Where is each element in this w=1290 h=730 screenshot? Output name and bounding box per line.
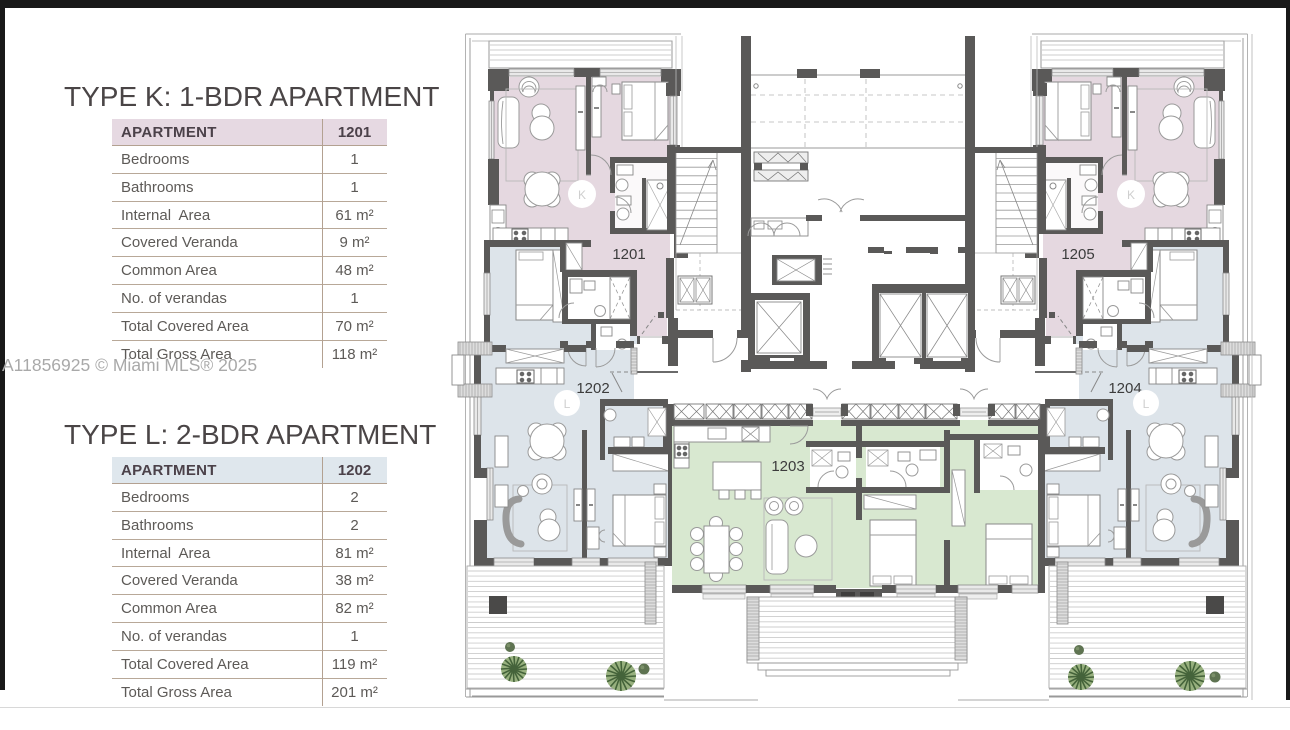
svg-text:K: K xyxy=(1127,188,1135,202)
svg-text:1205: 1205 xyxy=(1061,246,1094,263)
svg-text:K: K xyxy=(578,188,586,202)
svg-text:1201: 1201 xyxy=(612,246,645,263)
svg-text:1203: 1203 xyxy=(771,458,804,475)
svg-text:L: L xyxy=(1143,397,1150,411)
svg-text:1202: 1202 xyxy=(576,380,609,397)
svg-text:L: L xyxy=(564,397,571,411)
